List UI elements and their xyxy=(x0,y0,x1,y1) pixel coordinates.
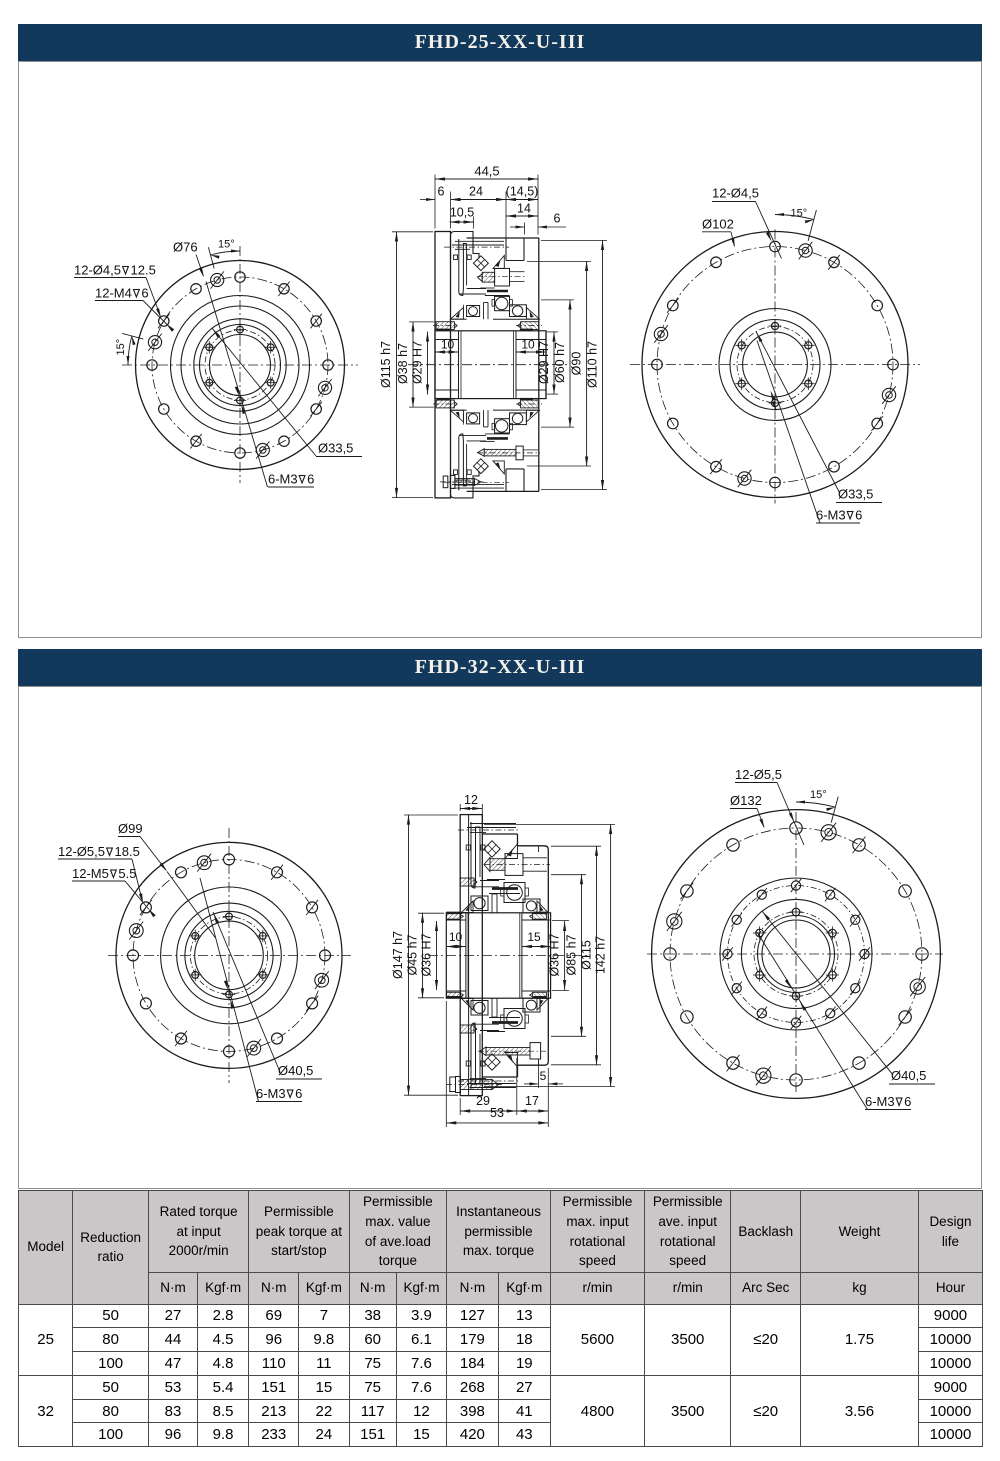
svg-text:12-M5: 12-M5 xyxy=(72,866,109,881)
svg-text:12.5: 12.5 xyxy=(131,262,156,277)
svg-text:Ø45 h7: Ø45 h7 xyxy=(406,934,420,975)
svg-text:10: 10 xyxy=(441,337,455,351)
svg-text:10: 10 xyxy=(449,930,463,944)
svg-text:Ø33,5: Ø33,5 xyxy=(318,440,353,455)
svg-text:12-Ø5,5: 12-Ø5,5 xyxy=(735,767,782,782)
svg-text:Ø40,5: Ø40,5 xyxy=(278,1063,313,1078)
svg-text:15°: 15° xyxy=(115,338,127,355)
svg-text:Ø102: Ø102 xyxy=(702,216,734,231)
svg-text:18.5: 18.5 xyxy=(115,844,140,859)
svg-text:6-M3: 6-M3 xyxy=(268,471,298,486)
svg-text:12-M4: 12-M4 xyxy=(95,285,132,300)
svg-text:6-M3: 6-M3 xyxy=(256,1086,286,1101)
svg-text:10: 10 xyxy=(521,337,535,351)
svg-text:6: 6 xyxy=(554,211,561,225)
svg-text:Ø40,5: Ø40,5 xyxy=(891,1068,926,1083)
svg-text:Ø36 H7: Ø36 H7 xyxy=(548,933,562,976)
svg-text:Ø29 H7: Ø29 H7 xyxy=(537,340,551,383)
svg-text:(14,5): (14,5) xyxy=(506,184,539,198)
svg-text:17: 17 xyxy=(525,1094,539,1108)
svg-text:Ø147 h7: Ø147 h7 xyxy=(391,931,405,979)
svg-text:15°: 15° xyxy=(810,789,827,801)
svg-text:Ø29 H7: Ø29 H7 xyxy=(411,340,425,383)
svg-text:15°: 15° xyxy=(791,207,808,219)
svg-text:6: 6 xyxy=(141,285,148,300)
svg-text:Ø36 H7: Ø36 H7 xyxy=(420,933,434,976)
svg-text:Ø33,5: Ø33,5 xyxy=(838,486,873,501)
svg-text:53: 53 xyxy=(490,1106,504,1120)
svg-text:12-Ø4,5: 12-Ø4,5 xyxy=(74,262,121,277)
svg-text:15°: 15° xyxy=(218,238,235,250)
svg-text:44,5: 44,5 xyxy=(474,163,499,178)
svg-text:Ø99: Ø99 xyxy=(118,821,143,836)
svg-text:12-Ø5,5: 12-Ø5,5 xyxy=(58,844,105,859)
svg-text:15: 15 xyxy=(527,930,541,944)
svg-text:6: 6 xyxy=(295,1086,302,1101)
svg-text:Ø115 h7: Ø115 h7 xyxy=(379,340,393,387)
svg-text:14: 14 xyxy=(517,201,531,215)
svg-text:6: 6 xyxy=(438,184,445,198)
svg-text:6: 6 xyxy=(307,471,314,486)
svg-text:24: 24 xyxy=(469,184,483,198)
svg-text:142 h7: 142 h7 xyxy=(594,936,608,974)
svg-text:6-M3: 6-M3 xyxy=(816,507,846,522)
svg-text:Ø90: Ø90 xyxy=(570,351,584,375)
svg-text:6: 6 xyxy=(855,507,862,522)
svg-text:Ø76: Ø76 xyxy=(173,239,198,254)
svg-text:12-Ø4,5: 12-Ø4,5 xyxy=(712,185,759,200)
svg-text:Ø110 h7: Ø110 h7 xyxy=(586,340,600,387)
svg-text:29: 29 xyxy=(476,1094,490,1108)
svg-text:5.5: 5.5 xyxy=(118,866,136,881)
svg-text:Ø132: Ø132 xyxy=(730,793,762,808)
svg-text:6: 6 xyxy=(904,1094,911,1109)
svg-text:Ø85 h7: Ø85 h7 xyxy=(565,934,579,975)
svg-text:6-M3: 6-M3 xyxy=(865,1094,895,1109)
svg-text:Ø60 h7: Ø60 h7 xyxy=(553,341,567,382)
svg-text:Ø115: Ø115 xyxy=(580,940,594,970)
svg-text:12: 12 xyxy=(464,793,478,807)
svg-text:10,5: 10,5 xyxy=(450,205,474,219)
svg-text:5: 5 xyxy=(540,1069,547,1083)
svg-text:Ø38 h7: Ø38 h7 xyxy=(396,342,410,383)
